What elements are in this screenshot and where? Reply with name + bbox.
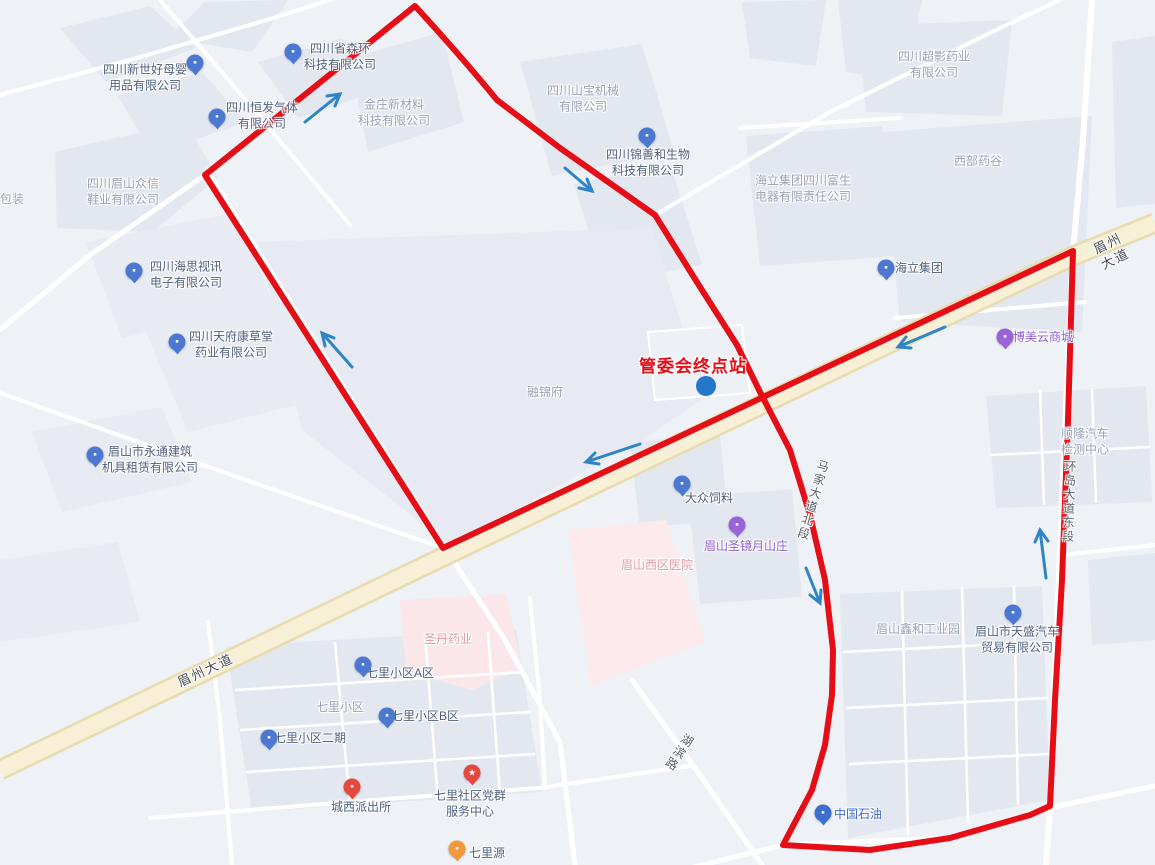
poi-label-qiliyuan[interactable]: 七里源 xyxy=(469,846,505,862)
poi-label-hengfa[interactable]: 四川恒发气体 有限公司 xyxy=(226,100,298,131)
car-icon: ▪ xyxy=(1011,608,1015,618)
poi-pin-haili[interactable]: ▪ xyxy=(878,260,895,277)
poi-label-haili[interactable]: 海立集团 xyxy=(895,261,943,277)
poi-pin-kangcaotang[interactable]: ▪ xyxy=(169,334,186,351)
terminal-station-label: 管委会终点站 xyxy=(639,356,747,378)
poi-pin-bomei[interactable]: ▪ xyxy=(997,329,1014,346)
road-label-meizhou-sw: 眉州大道 xyxy=(175,651,237,692)
map-container[interactable]: 管委会终点站 ▪ ▪ ▪ ▪ ▪ ▪ ▪ ▪ ▪ ▪ ▪ ▪ ▪ ▪ ▪ ▪ ★… xyxy=(0,0,1155,865)
poi-pin-haisi[interactable]: ▪ xyxy=(126,263,143,280)
poi-pin-tiansheng[interactable]: ▪ xyxy=(1005,605,1022,622)
building-icon: ▪ xyxy=(132,266,136,276)
star-icon: ★ xyxy=(468,769,476,778)
poi-label-kangcaotang[interactable]: 四川天府康草堂 药业有限公司 xyxy=(189,329,273,360)
poi-pin-police[interactable]: ▪ xyxy=(344,779,361,796)
poi-label-senhuan[interactable]: 四川省森环 科技有限公司 xyxy=(304,41,376,72)
poi-label-fusheng: 海立集团四川富生 电器有限责任公司 xyxy=(755,173,851,204)
poi-label-xiqu-hospital: 眉山西区医院 xyxy=(621,558,693,574)
poi-label-shengjing[interactable]: 眉山圣镜月山庄 xyxy=(704,539,788,555)
poi-label-chengxi-police[interactable]: 城西派出所 xyxy=(331,800,391,816)
poi-pin-yongtong[interactable]: ▪ xyxy=(87,447,104,464)
poi-label-shanbao: 四川山宝机械 有限公司 xyxy=(547,83,619,114)
poi-label-shunlong: 顺隆汽车 检测中心 xyxy=(1061,426,1109,457)
building-icon: ▪ xyxy=(884,263,888,273)
food-icon: ▪ xyxy=(455,844,459,854)
poi-label-zhongxin: 四川眉山众信 鞋业有限公司 xyxy=(87,176,159,207)
poi-label-shengdan: 圣丹药业 xyxy=(424,632,472,648)
labels-layer: 管委会终点站 ▪ ▪ ▪ ▪ ▪ ▪ ▪ ▪ ▪ ▪ ▪ ▪ ▪ ▪ ▪ ▪ ★… xyxy=(0,0,1155,865)
poi-label-xinhe: 眉山鑫和工业园 xyxy=(876,622,960,638)
building-icon: ▪ xyxy=(361,660,365,670)
poi-pin-qili-b[interactable]: ▪ xyxy=(379,708,396,725)
poi-pin-qiliyuan[interactable]: ▪ xyxy=(449,841,466,858)
fuel-icon: ▪ xyxy=(821,808,825,818)
poi-pin-shengjing[interactable]: ▪ xyxy=(729,517,746,534)
building-icon: ▪ xyxy=(291,47,295,57)
poi-pin-jinshanhe[interactable]: ▪ xyxy=(639,128,656,145)
poi-label-qili: 七里小区 xyxy=(316,700,364,716)
police-icon: ▪ xyxy=(350,782,354,792)
road-label-huandao-east: 环岛大道东段 xyxy=(1059,460,1078,544)
poi-label-petrochina[interactable]: 中国石油 xyxy=(834,807,882,823)
terminal-marker-dot xyxy=(696,376,716,396)
poi-label-jinzhuang: 金庄新材料 科技有限公司 xyxy=(358,97,430,128)
building-icon: ▪ xyxy=(385,711,389,721)
building-icon: ▪ xyxy=(93,450,97,460)
poi-label-rongjinfu: 融锦府 xyxy=(527,385,563,401)
poi-pin-xinshihao[interactable]: ▪ xyxy=(187,55,204,72)
poi-label-dazhong[interactable]: 大众饲料 xyxy=(685,491,733,507)
building-icon: ▪ xyxy=(215,112,219,122)
poi-label-yongtong[interactable]: 眉山市永通建筑 机具租赁有限公司 xyxy=(102,444,198,475)
poi-label-dangqun[interactable]: 七里社区党群 服务中心 xyxy=(434,788,506,819)
poi-label-xibuyaogu: 西部药谷 xyxy=(954,154,1002,170)
poi-label-qili-a[interactable]: 七里小区A区 xyxy=(366,666,434,682)
poi-pin-qili-a[interactable]: ▪ xyxy=(355,657,372,674)
poi-pin-qili-erqi[interactable]: ▪ xyxy=(261,730,278,747)
building-icon: ▪ xyxy=(680,479,684,489)
building-icon: ▪ xyxy=(267,733,271,743)
building-icon: ▪ xyxy=(193,58,197,68)
poi-pin-dazhong[interactable]: ▪ xyxy=(674,476,691,493)
poi-label-bomei[interactable]: 博美云商城 xyxy=(1013,330,1073,346)
poi-pin-dangqun[interactable]: ★ xyxy=(464,765,481,782)
road-label-majia-north: 马家大道北段 xyxy=(793,457,831,542)
poi-label-baozhuang: 包装 xyxy=(0,192,24,208)
road-label-hubin: 湖滨路 xyxy=(660,730,696,774)
poi-pin-hengfa[interactable]: ▪ xyxy=(209,109,226,126)
poi-label-qili-b[interactable]: 七里小区B区 xyxy=(391,709,459,725)
building-icon: ▪ xyxy=(645,131,649,141)
poi-label-xinshihao[interactable]: 四川新世好母婴 用品有限公司 xyxy=(103,62,187,93)
poi-label-qili-erqi[interactable]: 七里小区二期 xyxy=(274,731,346,747)
poi-pin-senhuan[interactable]: ▪ xyxy=(285,44,302,61)
poi-label-haisi[interactable]: 四川海思视讯 电子有限公司 xyxy=(150,259,222,290)
poi-pin-petrochina[interactable]: ▪ xyxy=(815,805,832,822)
bed-icon: ▪ xyxy=(735,520,739,530)
poi-label-chaoying: 四川超影药业 有限公司 xyxy=(898,49,970,80)
mall-icon: ▪ xyxy=(1003,332,1007,342)
building-icon: ▪ xyxy=(175,337,179,347)
road-label-meizhou-ne: 眉州大道 xyxy=(1085,227,1138,276)
